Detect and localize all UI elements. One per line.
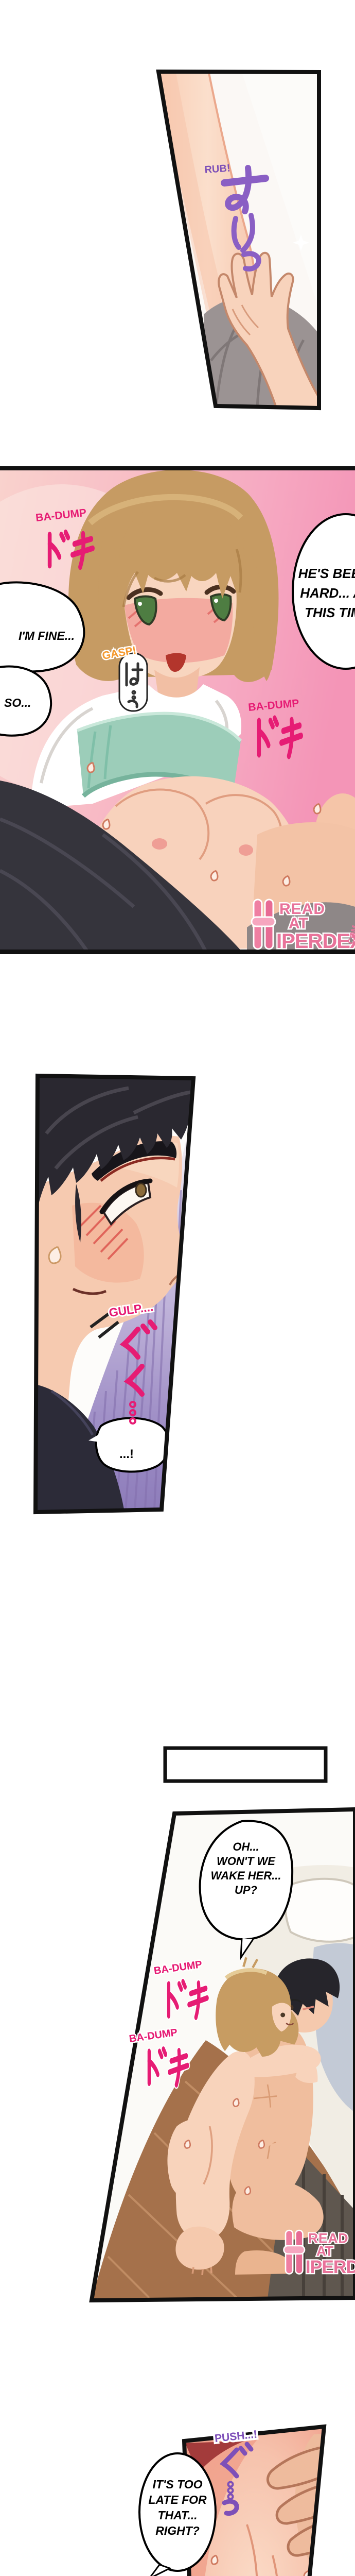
svg-text:RUB!: RUB! [204,163,230,176]
svg-text:AT: AT [316,2243,333,2259]
svg-text:WAKE HER...: WAKE HER... [211,1869,281,1882]
svg-text:I'M FINE...: I'M FINE... [19,629,75,642]
svg-text:HE'S BEEN...: HE'S BEEN... [298,566,355,581]
svg-text:RIGHT?: RIGHT? [155,2524,200,2537]
svg-text:IPERDEX: IPERDEX [276,930,355,953]
svg-text:OH...: OH... [233,1840,259,1853]
svg-text:SO...: SO... [4,696,31,709]
svg-text:UP?: UP? [235,1884,257,1896]
svg-text:WON'T WE: WON'T WE [217,1855,276,1868]
svg-text:LATE FOR: LATE FOR [148,2493,207,2506]
svg-text:IPERDEX!: IPERDEX! [306,2257,355,2277]
svg-text:HARD... ALL: HARD... ALL [300,585,355,601]
svg-text:THAT...: THAT... [157,2509,197,2522]
svg-text:THIS TIME.: THIS TIME. [305,605,355,620]
svg-text:IT'S TOO: IT'S TOO [152,2478,202,2491]
svg-text:...!: ...! [119,1447,134,1461]
